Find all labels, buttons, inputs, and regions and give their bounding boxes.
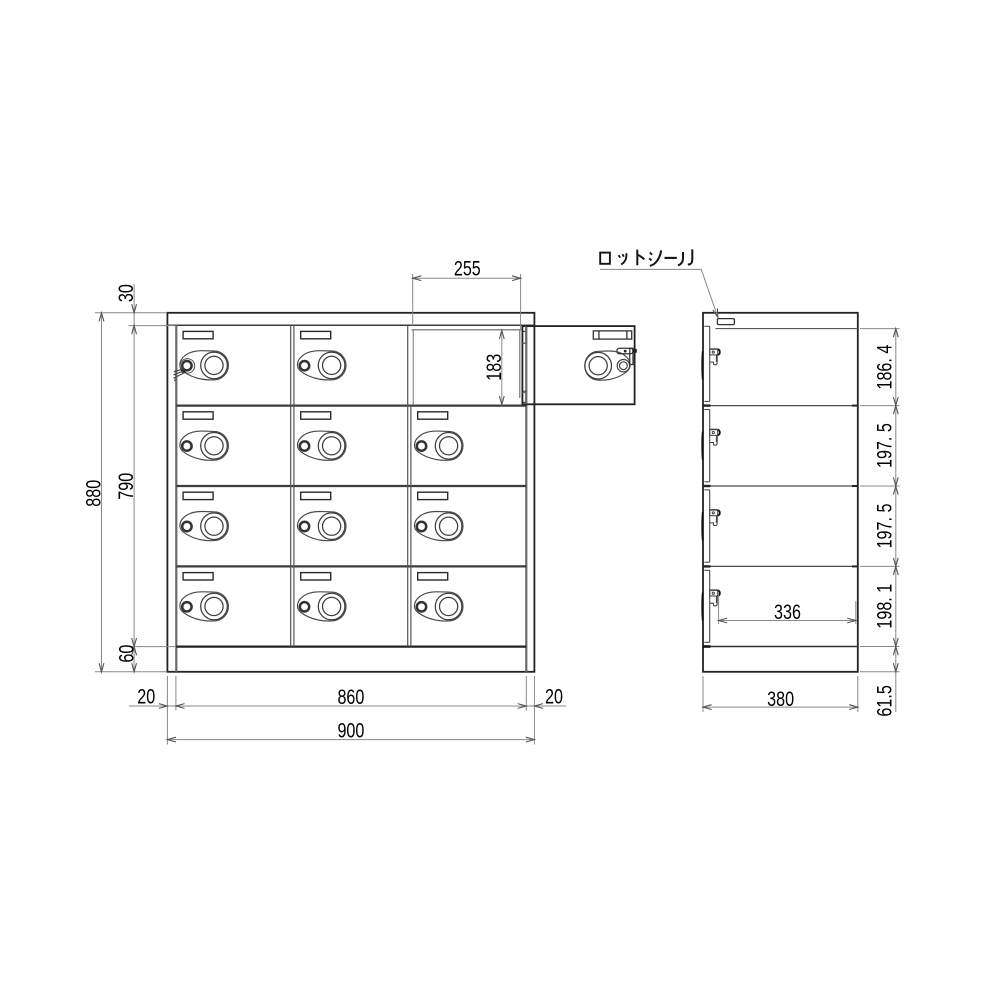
svg-text:900: 900: [337, 719, 364, 743]
svg-text:61.5: 61.5: [873, 685, 897, 716]
svg-text:183: 183: [483, 354, 507, 381]
svg-text:198. 1: 198. 1: [873, 584, 897, 629]
svg-text:860: 860: [337, 686, 364, 710]
svg-text:60: 60: [115, 645, 139, 663]
svg-text:20: 20: [137, 685, 155, 709]
svg-text:380: 380: [767, 688, 794, 712]
svg-text:790: 790: [115, 473, 139, 500]
svg-text:20: 20: [545, 685, 563, 709]
svg-text:880: 880: [82, 480, 106, 507]
svg-text:336: 336: [774, 601, 801, 625]
svg-text:255: 255: [454, 257, 481, 281]
svg-text:197. 5: 197. 5: [873, 423, 897, 468]
svg-text:186. 4: 186. 4: [873, 344, 897, 389]
svg-text:197. 5: 197. 5: [873, 504, 897, 549]
svg-text:30: 30: [115, 284, 139, 302]
